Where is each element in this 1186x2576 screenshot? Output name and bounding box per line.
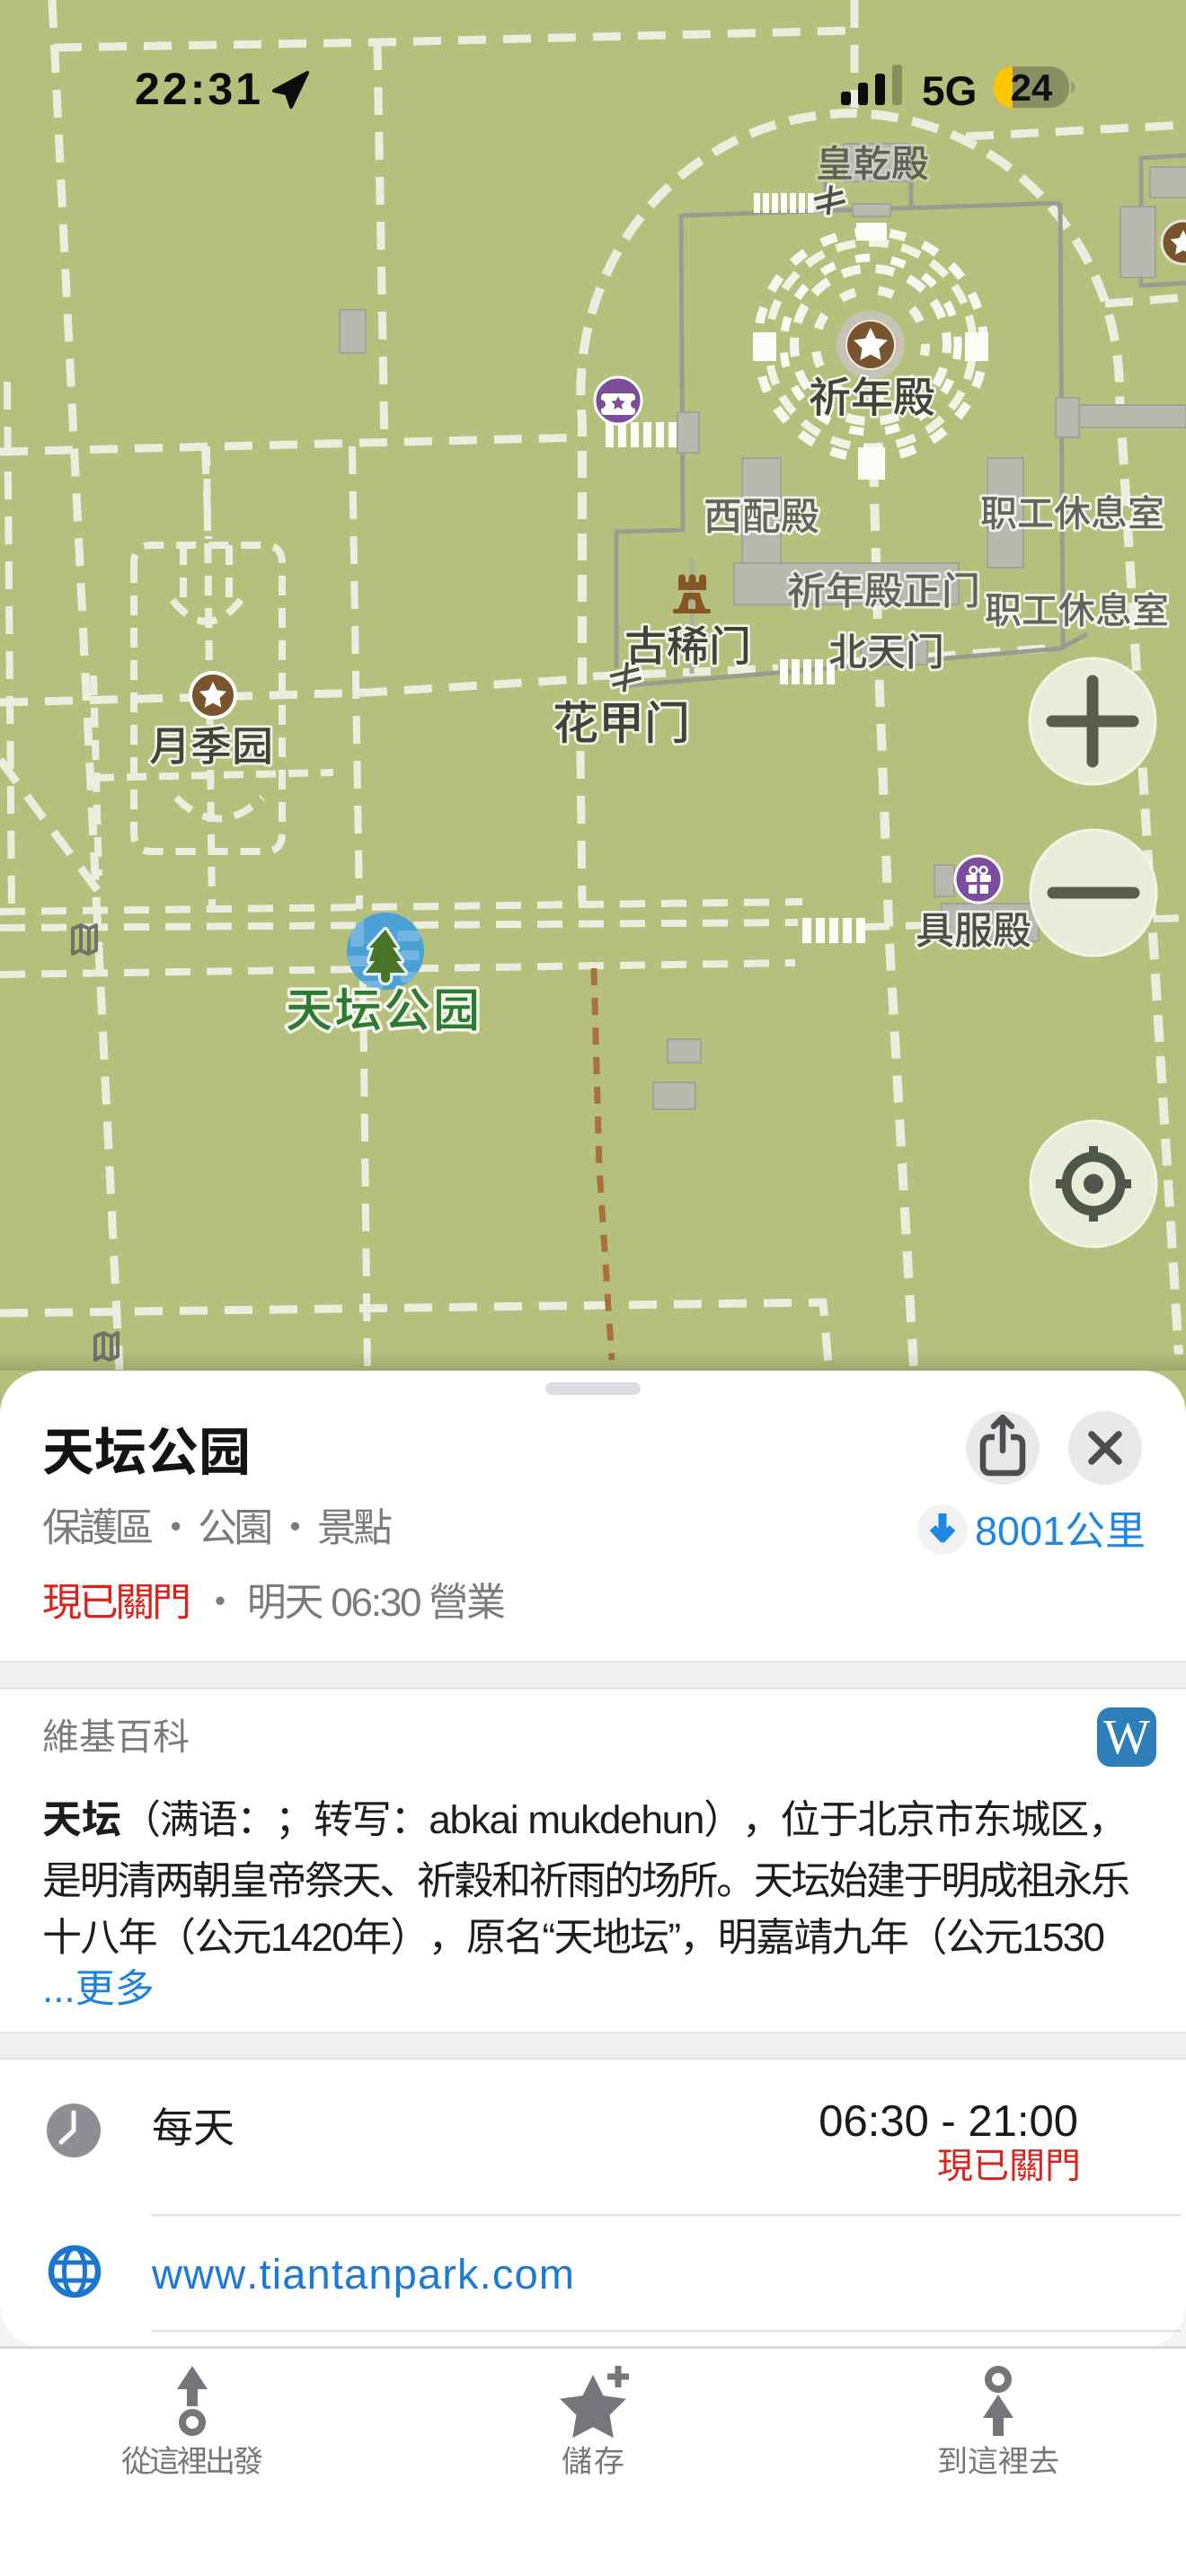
svg-text:W: W — [1103, 1709, 1150, 1764]
